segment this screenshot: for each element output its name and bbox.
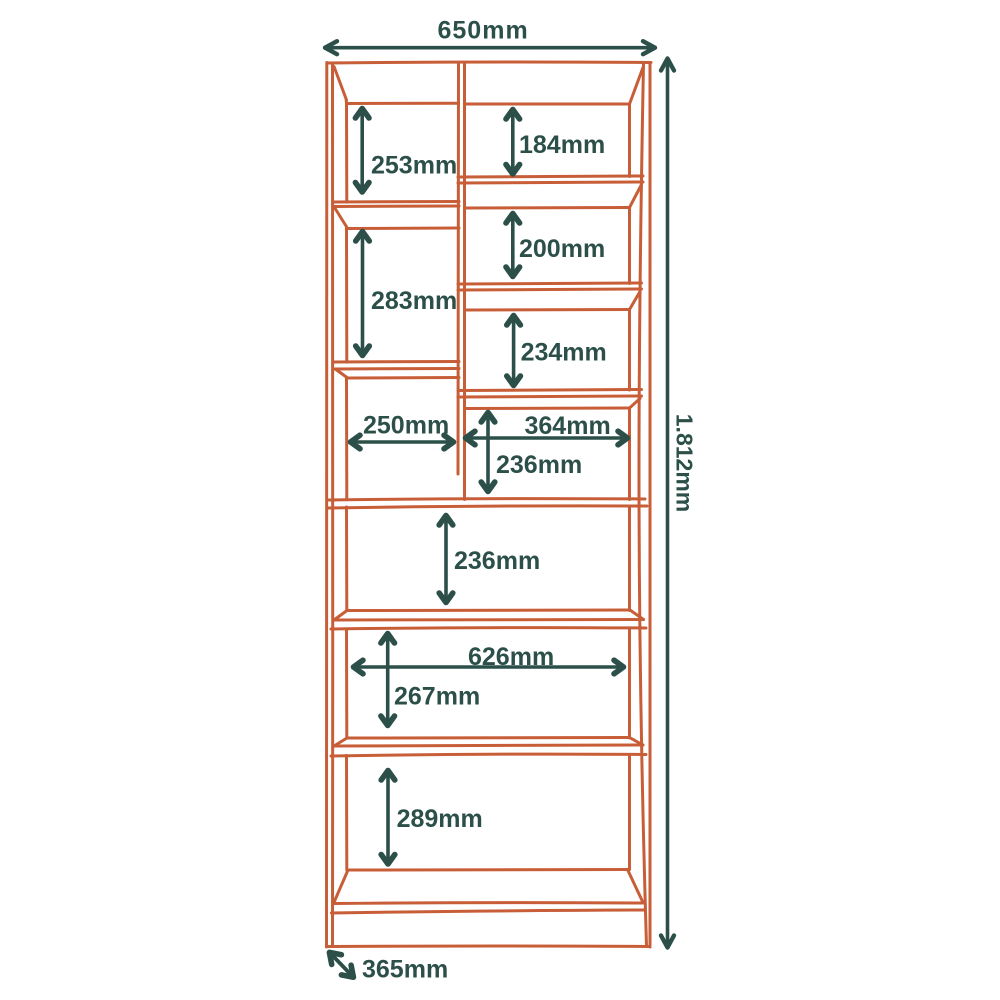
svg-text:283mm: 283mm [371,287,457,315]
svg-text:234mm: 234mm [521,339,607,367]
svg-text:253mm: 253mm [371,152,457,180]
svg-text:289mm: 289mm [397,805,483,833]
svg-text:236mm: 236mm [454,547,540,575]
svg-text:1.812mm: 1.812mm [672,414,698,512]
svg-text:236mm: 236mm [496,451,582,479]
svg-text:184mm: 184mm [519,131,605,159]
svg-text:626mm: 626mm [468,643,554,671]
svg-text:650mm: 650mm [438,17,529,45]
svg-text:267mm: 267mm [394,683,480,711]
svg-text:365mm: 365mm [362,956,448,984]
svg-text:250mm: 250mm [363,412,449,440]
svg-text:200mm: 200mm [519,235,605,263]
svg-text:364mm: 364mm [525,412,611,440]
